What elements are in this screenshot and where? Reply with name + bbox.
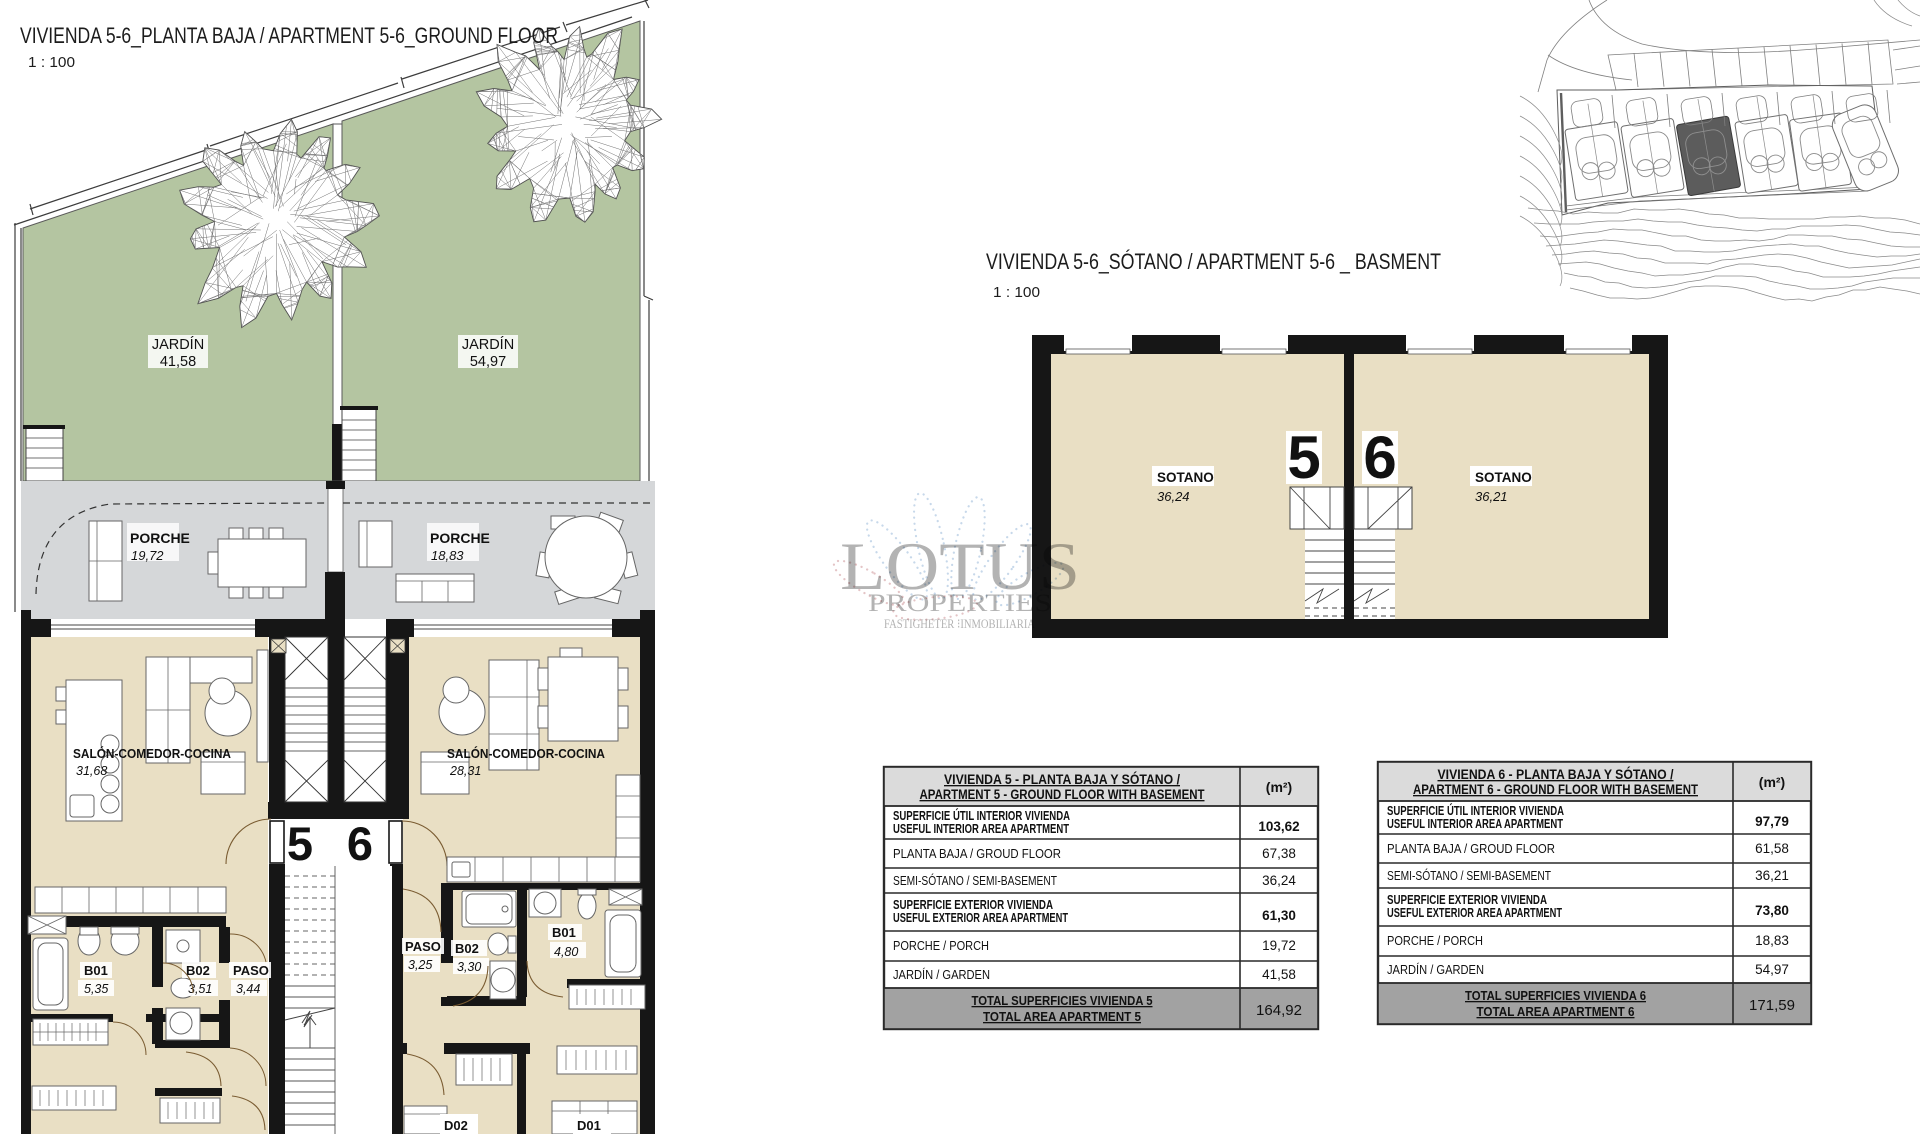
svg-text:TOTAL SUPERFICIES VIVIENDA 6: TOTAL SUPERFICIES VIVIENDA 6 (1465, 988, 1646, 1003)
svg-text:36,24: 36,24 (1157, 489, 1190, 504)
svg-text:APARTMENT 6 - GROUND FLOOR WIT: APARTMENT 6 - GROUND FLOOR WITH BASEMENT (1413, 782, 1699, 797)
svg-text:36,24: 36,24 (1262, 873, 1296, 888)
svg-text:TOTAL AREA APARTMENT 5: TOTAL AREA APARTMENT 5 (983, 1009, 1141, 1024)
svg-text:JARDÍN: JARDÍN (462, 336, 514, 353)
svg-text:TOTAL AREA APARTMENT 6: TOTAL AREA APARTMENT 6 (1477, 1004, 1635, 1019)
svg-text:36,21: 36,21 (1755, 868, 1789, 883)
svg-text:54,97: 54,97 (1755, 962, 1789, 977)
svg-text:1 : 100: 1 : 100 (993, 284, 1040, 301)
svg-text:103,62: 103,62 (1258, 819, 1299, 834)
svg-text:28,31: 28,31 (449, 764, 481, 778)
svg-text:APARTMENT 5 - GROUND FLOOR WIT: APARTMENT 5 - GROUND FLOOR WITH BASEMENT (920, 787, 1206, 802)
svg-text:5: 5 (287, 817, 313, 870)
svg-text:5,35: 5,35 (84, 982, 108, 996)
svg-text:PORCHE / PORCH: PORCHE / PORCH (1387, 934, 1483, 948)
svg-text:VIVIENDA 5-6_SÓTANO / APARTME: VIVIENDA 5-6_SÓTANO / APARTMENT 5-6 _ BA… (986, 249, 1441, 274)
svg-text:171,59: 171,59 (1749, 997, 1795, 1014)
svg-text:B02: B02 (186, 963, 210, 978)
svg-text:54,97: 54,97 (470, 354, 506, 370)
svg-text:D02: D02 (444, 1118, 468, 1133)
svg-text:VIVIENDA 5-6_PLANTA BAJA / APA: VIVIENDA 5-6_PLANTA BAJA / APARTMENT 5-6… (20, 23, 558, 48)
svg-text:1 : 100: 1 : 100 (28, 54, 75, 71)
svg-text:41,58: 41,58 (160, 354, 196, 370)
svg-text:JARDÍN: JARDÍN (152, 336, 204, 353)
svg-text:19,72: 19,72 (1262, 938, 1296, 953)
svg-text:JARDÍN / GARDEN: JARDÍN / GARDEN (893, 967, 990, 982)
svg-text:SOTANO: SOTANO (1475, 470, 1532, 485)
svg-text:PLANTA BAJA / GROUD FLOOR: PLANTA BAJA / GROUD FLOOR (893, 847, 1061, 861)
svg-text:USEFUL EXTERIOR AREA APARTMENT: USEFUL EXTERIOR AREA APARTMENT (893, 911, 1068, 925)
svg-text:97,79: 97,79 (1755, 814, 1789, 829)
svg-text:18,83: 18,83 (431, 548, 464, 563)
svg-text:5: 5 (1287, 424, 1320, 491)
svg-text:SEMI-SÓTANO / SEMI-BASEMENT: SEMI-SÓTANO / SEMI-BASEMENT (1387, 868, 1551, 883)
svg-text:PASO: PASO (233, 963, 269, 978)
svg-text:B02: B02 (455, 941, 479, 956)
svg-text:SUPERFICIE EXTERIOR VIVIENDA: SUPERFICIE EXTERIOR VIVIENDA (893, 898, 1053, 912)
svg-text:PORCHE / PORCH: PORCHE / PORCH (893, 939, 989, 953)
svg-text:USEFUL EXTERIOR AREA APARTMENT: USEFUL EXTERIOR AREA APARTMENT (1387, 906, 1562, 920)
svg-text:VIVIENDA 5 - PLANTA BAJA Y SÓT: VIVIENDA 5 - PLANTA BAJA Y SÓTANO / (944, 772, 1180, 787)
svg-text:B01: B01 (552, 925, 576, 940)
svg-text:3,30: 3,30 (457, 960, 481, 974)
svg-text:JARDÍN / GARDEN: JARDÍN / GARDEN (1387, 962, 1484, 977)
svg-text:B01: B01 (84, 963, 108, 978)
svg-text:(m²): (m²) (1759, 774, 1785, 790)
svg-text:PORCHE: PORCHE (430, 530, 490, 546)
svg-text:18,83: 18,83 (1755, 933, 1789, 948)
svg-text:41,58: 41,58 (1262, 967, 1296, 982)
svg-text:USEFUL INTERIOR AREA APARTMENT: USEFUL INTERIOR AREA APARTMENT (1387, 817, 1563, 831)
svg-text:3,25: 3,25 (408, 958, 432, 972)
svg-text:SALÓN-COMEDOR-COCINA: SALÓN-COMEDOR-COCINA (73, 746, 232, 761)
svg-text:PORCHE: PORCHE (130, 530, 190, 546)
svg-text:4,80: 4,80 (554, 945, 578, 959)
svg-text:PROPERTIES: PROPERTIES (868, 590, 1052, 617)
svg-text:164,92: 164,92 (1256, 1002, 1302, 1019)
svg-text:PASO: PASO (405, 939, 441, 954)
svg-text:SEMI-SÓTANO / SEMI-BASEMENT: SEMI-SÓTANO / SEMI-BASEMENT (893, 873, 1057, 888)
svg-text:36,21: 36,21 (1475, 489, 1508, 504)
svg-text:61,58: 61,58 (1755, 841, 1789, 856)
svg-text:SOTANO: SOTANO (1157, 470, 1214, 485)
svg-text:(m²): (m²) (1266, 779, 1292, 795)
svg-text:FASTIGHETER ⁝INMOBILIARIA: FASTIGHETER ⁝INMOBILIARIA (884, 616, 1035, 631)
svg-text:USEFUL INTERIOR AREA APARTMENT: USEFUL INTERIOR AREA APARTMENT (893, 822, 1069, 836)
svg-text:61,30: 61,30 (1262, 908, 1296, 923)
svg-text:D01: D01 (577, 1118, 601, 1133)
svg-text:73,80: 73,80 (1755, 903, 1789, 918)
svg-text:SUPERFICIE EXTERIOR VIVIENDA: SUPERFICIE EXTERIOR VIVIENDA (1387, 893, 1547, 907)
svg-text:31,68: 31,68 (76, 764, 107, 778)
svg-text:6: 6 (1363, 424, 1396, 491)
svg-text:67,38: 67,38 (1262, 846, 1296, 861)
svg-text:PLANTA BAJA / GROUD FLOOR: PLANTA BAJA / GROUD FLOOR (1387, 842, 1555, 856)
svg-text:3,44: 3,44 (236, 982, 260, 996)
svg-text:SALÓN-COMEDOR-COCINA: SALÓN-COMEDOR-COCINA (447, 746, 606, 761)
svg-text:SUPERFICIE ÚTIL INTERIOR VIVIE: SUPERFICIE ÚTIL INTERIOR VIVIENDA (1387, 803, 1564, 818)
svg-text:TOTAL SUPERFICIES VIVIENDA 5: TOTAL SUPERFICIES VIVIENDA 5 (972, 993, 1153, 1008)
svg-text:6: 6 (347, 817, 373, 870)
svg-text:SUPERFICIE ÚTIL INTERIOR VIVIE: SUPERFICIE ÚTIL INTERIOR VIVIENDA (893, 808, 1070, 823)
svg-text:VIVIENDA 6 - PLANTA BAJA Y SÓT: VIVIENDA 6 - PLANTA BAJA Y SÓTANO / (1438, 767, 1674, 782)
svg-text:19,72: 19,72 (131, 548, 164, 563)
